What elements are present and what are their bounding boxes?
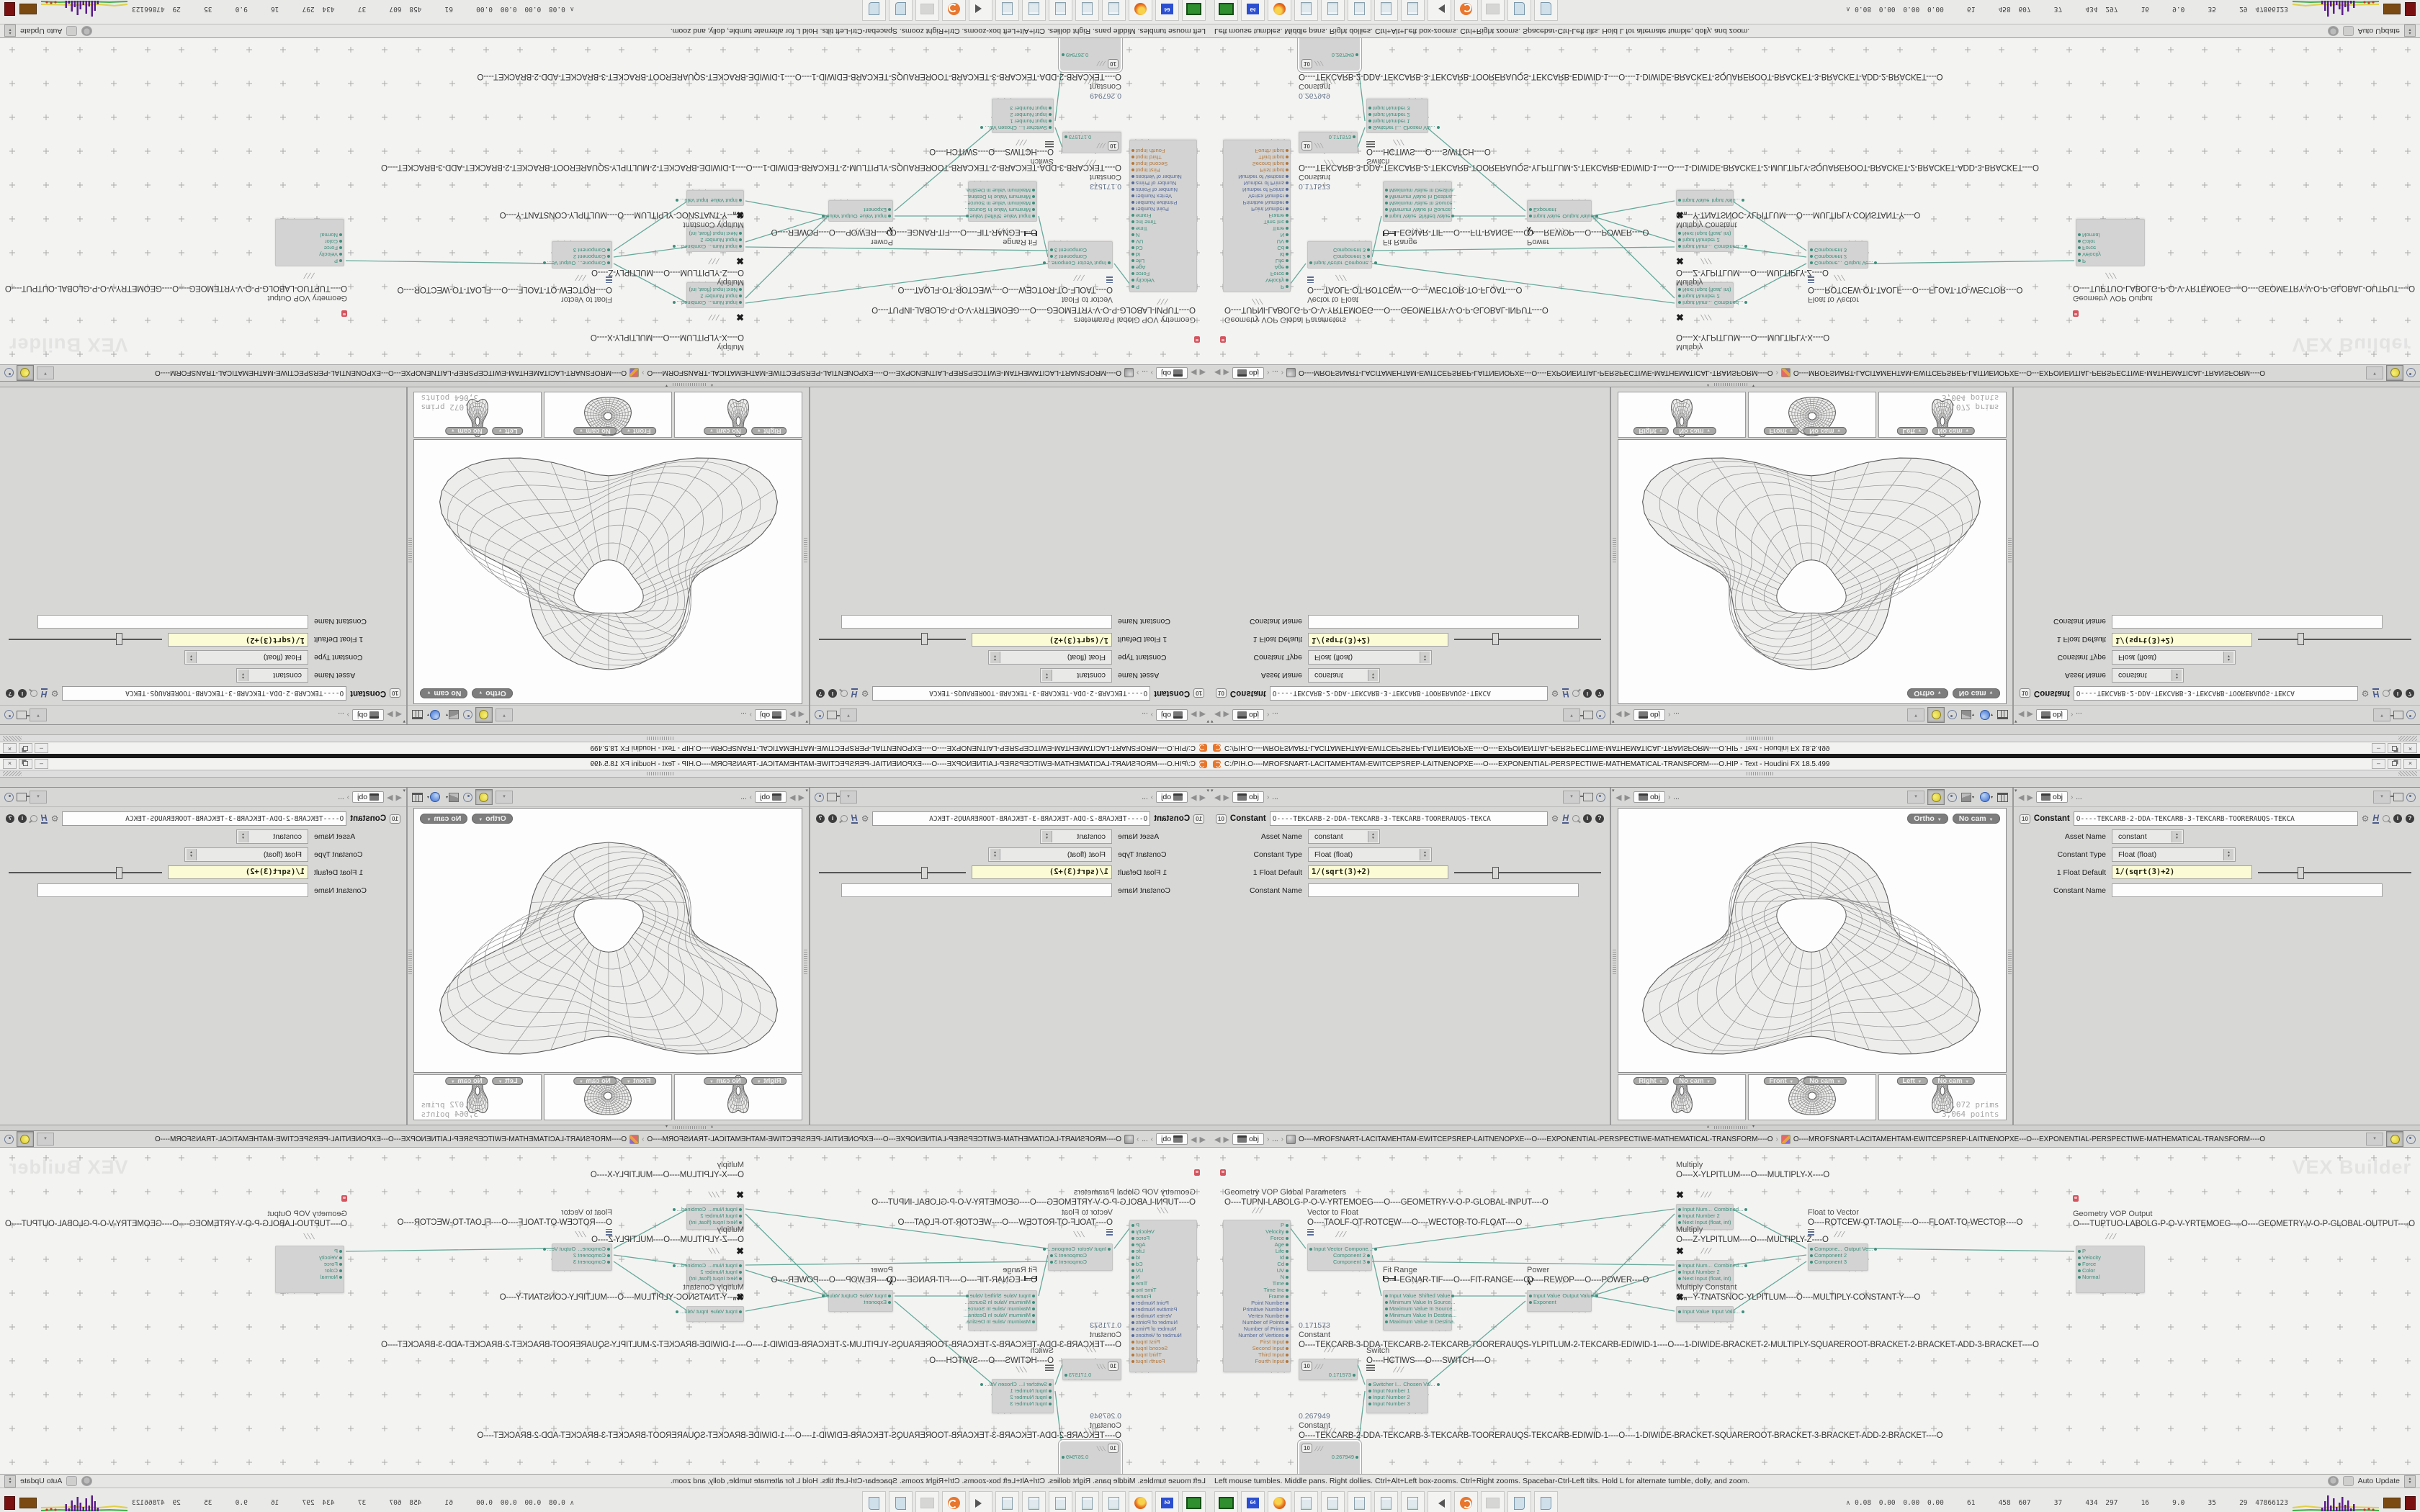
stepper-icon[interactable]: ▲▼ [2223, 652, 2233, 664]
collapsed-shelf[interactable] [1210, 770, 2420, 778]
asset-name-dropdown[interactable]: constant▲▼ [236, 669, 308, 683]
firefox-taskbar-icon[interactable] [1268, 0, 1291, 21]
breadcrumb-ellipsis[interactable]: ... [1673, 793, 1679, 801]
viewport-layout-icon[interactable] [412, 793, 423, 802]
vop-node-switch[interactable]: Switcher I...Chosen Val...Input Number 1… [992, 99, 1054, 133]
follow-selection-icon[interactable] [2406, 1135, 2416, 1144]
notepad-taskbar-icon[interactable] [1022, 1491, 1046, 1512]
display-taskbar-icon[interactable] [1214, 0, 1238, 21]
notepad-taskbar-icon[interactable] [1348, 1491, 1371, 1512]
vop-node-multiply-z[interactable]: Input Num...Combined...Input Number 2Nex… [1676, 1260, 1734, 1286]
view-projection-button[interactable]: Left ▼ [1896, 1077, 1927, 1085]
follow-selection-icon[interactable] [1596, 711, 1605, 720]
render-taskbar-icon[interactable] [915, 1491, 939, 1512]
stepper-icon[interactable]: ▲▼ [1042, 831, 1052, 842]
context-chip[interactable]: obj [1232, 709, 1264, 721]
viewport-right-view[interactable]: Right ▼ No cam ▼ [1618, 392, 1746, 438]
info-icon[interactable]: i [1583, 814, 1592, 823]
constant-type-dropdown[interactable]: Float (float)▲▼ [2112, 651, 2236, 665]
close-button[interactable]: × [2403, 743, 2417, 753]
path-dropdown[interactable]: ▾ [1907, 708, 1924, 721]
constant-name-field[interactable] [1308, 615, 1579, 629]
tray-expand-icon[interactable]: ∧ [570, 1499, 575, 1507]
horizontal-splitter[interactable] [0, 381, 1210, 387]
pin-icon[interactable] [17, 711, 27, 719]
script-taskbar-icon[interactable] [862, 1491, 886, 1512]
render-flag-icon[interactable] [1194, 336, 1200, 343]
follow-selection-icon[interactable] [815, 711, 824, 720]
follow-selection-icon[interactable] [1948, 793, 1957, 802]
update-mode-icon[interactable] [66, 26, 77, 36]
auto-update-dropdown[interactable]: ▲▼ [4, 25, 16, 37]
camera-select-button[interactable]: No cam ▼ [1932, 427, 1975, 435]
shading-mode-button[interactable]: ▾ [444, 708, 460, 722]
forward-icon[interactable]: ▶ [1191, 793, 1196, 802]
search-icon[interactable] [841, 815, 848, 822]
view-projection-button[interactable]: Front ▼ [1763, 427, 1799, 435]
memory-monitor-icon[interactable] [2328, 26, 2339, 36]
float-default-field[interactable]: 1/(sqrt(3)+2) [1308, 865, 1448, 879]
constant-name-field[interactable] [37, 883, 308, 897]
splitter-grip-icon[interactable] [1714, 1126, 1747, 1129]
network-path-segment[interactable]: O----MROFSNART-LACITAMEHTAM-EWITCEPSREP-… [1793, 369, 2363, 377]
viewport-layout-icon[interactable] [1997, 711, 2008, 720]
stepper-icon[interactable]: ▲▼ [2172, 670, 2182, 682]
update-mode-icon[interactable] [2343, 26, 2354, 36]
float-default-field[interactable]: 1/(sqrt(3)+2) [1308, 633, 1448, 647]
viewport-front-view[interactable]: Front ▼ No cam ▼ [544, 392, 673, 438]
forward-icon[interactable]: ▶ [1223, 369, 1229, 378]
constant-name-field[interactable] [1308, 883, 1579, 897]
viewport-front-view[interactable]: Front ▼ No cam ▼ [1748, 392, 1876, 438]
vop-node-constant-2[interactable]: 10///0.267949 [1298, 1440, 1361, 1474]
vop-node-switch[interactable]: Switcher I...Chosen Val...Input Number 1… [992, 1379, 1054, 1413]
viewport-layout-icon[interactable] [412, 711, 423, 720]
node-name-field[interactable] [2074, 811, 2358, 826]
pane-menu-icon[interactable]: ▾ [1612, 719, 1615, 724]
constant-type-dropdown[interactable]: Float (float)▲▼ [1308, 651, 1432, 665]
help-icon[interactable]: ? [816, 814, 825, 823]
follow-selection-icon[interactable] [4, 369, 14, 378]
viewport-right-scrollbar[interactable] [2007, 387, 2013, 705]
float-default-field[interactable]: 1/(sqrt(3)+2) [2112, 633, 2252, 647]
minimize-button[interactable]: – [2372, 743, 2385, 753]
constant-type-dropdown[interactable]: Float (float)▲▼ [2112, 847, 2236, 862]
update-mode-icon[interactable] [66, 1476, 77, 1486]
notepad-taskbar-icon[interactable] [1294, 0, 1318, 21]
stepper-icon[interactable]: ▲▼ [187, 652, 197, 664]
node-name-field[interactable] [2074, 686, 2358, 701]
stepper-icon[interactable]: ▲▼ [1368, 831, 1378, 842]
slider-knob[interactable] [921, 634, 928, 646]
render-flag-icon[interactable] [1220, 1169, 1226, 1176]
breadcrumb-ellipsis[interactable]: ... [1142, 711, 1147, 719]
slider-knob[interactable] [2298, 634, 2304, 646]
shelf-grip-icon[interactable] [646, 737, 673, 740]
notepad-taskbar-icon[interactable] [1022, 0, 1046, 21]
float-default-slider[interactable] [819, 866, 966, 879]
context-chip[interactable]: obj [755, 791, 786, 803]
path-dropdown[interactable]: ▾ [2373, 708, 2390, 721]
help-language-icon[interactable]: H [851, 814, 858, 824]
link-editor-button[interactable] [475, 789, 493, 805]
path-dropdown[interactable]: ▾ [496, 791, 513, 804]
view-projection-button[interactable]: Front ▼ [621, 1077, 657, 1085]
camera-select-button[interactable]: No cam ▼ [573, 427, 617, 435]
display-options-button[interactable]: ▾ [426, 790, 442, 804]
follow-selection-icon[interactable] [2406, 369, 2416, 378]
view-projection-button[interactable]: Left ▼ [493, 427, 524, 435]
node-name-field[interactable] [1270, 686, 1548, 701]
stepper-icon[interactable]: ▲▼ [990, 652, 1000, 664]
help-icon[interactable]: ? [6, 689, 14, 698]
follow-selection-icon[interactable] [4, 711, 14, 720]
help-language-icon[interactable]: H [2372, 689, 2379, 698]
search-icon[interactable] [1572, 690, 1579, 697]
network-path-segment[interactable]: O----MROFSNART-LACITAMEHTAM-EWITCEPSREP-… [647, 369, 1121, 377]
help-icon[interactable]: ? [816, 689, 825, 698]
context-chip[interactable]: obj [352, 791, 384, 803]
volume-taskbar-icon[interactable] [969, 1491, 992, 1512]
pin-icon[interactable] [2393, 793, 2403, 801]
gear-icon[interactable]: ⚙ [2362, 814, 2370, 823]
auto-update-dropdown[interactable]: ▲▼ [2404, 25, 2416, 37]
display-taskbar-icon[interactable] [1182, 1491, 1206, 1512]
camera-select-button[interactable]: No cam ▼ [421, 814, 468, 824]
vop-node-geometry-vop-global-parameters[interactable]: PVelocityForceAgeLifeIdCdUVNTimeTime Inc… [1129, 140, 1197, 292]
link-editor-button[interactable] [2386, 1131, 2403, 1147]
viewport-left-scrollbar[interactable] [803, 387, 810, 705]
stepper-icon[interactable]: ▲▼ [238, 670, 248, 682]
info-icon[interactable]: i [18, 689, 27, 698]
asset-name-dropdown[interactable]: constant▲▼ [1308, 669, 1380, 683]
minimize-button[interactable]: – [2372, 759, 2385, 769]
float-default-field[interactable]: 1/(sqrt(3)+2) [2112, 865, 2252, 879]
float-default-field[interactable]: 1/(sqrt(3)+2) [972, 865, 1112, 879]
view-projection-button[interactable]: Ortho ▼ [1907, 688, 1948, 698]
follow-selection-icon[interactable] [1596, 793, 1605, 802]
pane-menu-icon[interactable]: ▾ [403, 719, 405, 724]
slider-knob[interactable] [921, 867, 928, 879]
collapsed-shelf[interactable] [1210, 734, 2420, 742]
window-titlebar[interactable]: C:/PIH.O----MROFSNART-LACITAMEHTAM-EWITC… [1210, 756, 2420, 770]
back-icon[interactable]: ◀ [799, 711, 805, 720]
follow-selection-icon[interactable] [815, 793, 824, 802]
shading-mode-button[interactable]: ▾ [1960, 708, 1976, 722]
houdini-taskbar-icon[interactable] [942, 0, 966, 21]
help-icon[interactable]: ? [6, 814, 14, 823]
stepper-icon[interactable]: ▲▼ [1420, 652, 1430, 664]
context-chip[interactable]: obj [2036, 709, 2068, 721]
context-chip[interactable]: obj [755, 709, 786, 721]
breadcrumb-ellipsis[interactable]: ... [338, 793, 344, 801]
window-titlebar[interactable]: C:/PIH.O----MROFSNART-LACITAMEHTAM-EWITC… [0, 742, 1210, 756]
slider-knob[interactable] [2298, 867, 2304, 879]
back-icon[interactable]: ◀ [2018, 793, 2024, 802]
houdini-taskbar-icon[interactable] [1454, 1491, 1478, 1512]
display-options-button[interactable]: ▾ [426, 708, 442, 722]
vop-node-geometry-vop-output[interactable]: PVelocityForceColorNormal [275, 219, 344, 266]
viewport-front-view[interactable]: Front ▼ No cam ▼ [544, 1074, 673, 1120]
pane-menu-icon[interactable]: ▾ [2015, 719, 2017, 724]
pane-menu-icon[interactable]: ▾ [1211, 719, 1214, 724]
pin-icon[interactable] [1583, 793, 1593, 801]
shelf-grip-icon[interactable] [646, 772, 673, 775]
camera-select-button[interactable]: No cam ▼ [1953, 688, 2000, 698]
info-icon[interactable]: i [2393, 689, 2402, 698]
pin-icon[interactable] [827, 793, 837, 801]
context-chip[interactable]: obj [2036, 791, 2068, 803]
viewport-right-scrollbar[interactable] [408, 807, 414, 1125]
camera-select-button[interactable]: No cam ▼ [1932, 1077, 1975, 1085]
stepper-icon[interactable]: ▲▼ [1368, 670, 1378, 682]
camera-select-button[interactable]: No cam ▼ [421, 688, 468, 698]
viewport-main[interactable]: Ortho ▼ No cam ▼ [1618, 439, 2007, 704]
asset-name-dropdown[interactable]: constant▲▼ [1308, 829, 1380, 844]
viewport-layout-icon[interactable] [1997, 793, 2008, 802]
float-default-slider[interactable] [1454, 634, 1601, 647]
camera-select-button[interactable]: No cam ▼ [704, 427, 747, 435]
network-path-segment[interactable]: O----MROFSNART-LACITAMEHTAM-EWITCEPSREP-… [1299, 369, 1773, 377]
stepper-icon[interactable]: ▲▼ [1042, 670, 1052, 682]
collapsed-shelf[interactable] [0, 770, 1210, 778]
stepper-icon[interactable]: ▲▼ [187, 849, 197, 860]
restore-button[interactable] [19, 759, 32, 769]
back-icon[interactable]: ◀ [1200, 793, 1206, 802]
forward-icon[interactable]: ▶ [1223, 711, 1229, 720]
asset-name-dropdown[interactable]: constant▲▼ [2112, 669, 2184, 683]
notepad-taskbar-icon[interactable] [1321, 0, 1345, 21]
script-taskbar-icon[interactable] [862, 0, 886, 21]
display-options-button[interactable]: ▾ [1978, 708, 1994, 722]
network-path-segment[interactable]: O----MROFSNART-LACITAMEHTAM-EWITCEPSREP-… [647, 1135, 1121, 1143]
context-chip[interactable]: obj [1156, 709, 1188, 721]
help-language-icon[interactable]: H [41, 689, 48, 698]
breadcrumb-ellipsis[interactable]: ... [740, 793, 746, 801]
stepper-icon[interactable]: ▲▼ [238, 831, 248, 842]
constant-name-field[interactable] [841, 883, 1112, 897]
breadcrumb-ellipsis[interactable]: ... [1272, 1135, 1278, 1143]
search-icon[interactable] [841, 690, 848, 697]
back-icon[interactable]: ◀ [1214, 1135, 1220, 1144]
script-taskbar-icon[interactable] [1534, 0, 1558, 21]
back-icon[interactable]: ◀ [396, 793, 402, 802]
node-name-field[interactable] [62, 686, 346, 701]
notepad-taskbar-icon[interactable] [1075, 1491, 1099, 1512]
context-chip[interactable]: obj [1633, 709, 1665, 721]
link-editor-button[interactable] [17, 1131, 34, 1147]
close-button[interactable]: × [2403, 759, 2417, 769]
node-name-field[interactable] [872, 811, 1150, 826]
asset-name-dropdown[interactable]: constant▲▼ [236, 829, 308, 844]
back-icon[interactable]: ◀ [1214, 793, 1220, 802]
network-graph[interactable]: VEX Builder Geometry VOP Global Paramete… [1210, 1148, 2420, 1474]
gear-icon[interactable]: ⚙ [1551, 814, 1559, 823]
breadcrumb-ellipsis[interactable]: ... [740, 711, 746, 719]
back-icon[interactable]: ◀ [1200, 369, 1206, 378]
back-icon[interactable]: ◀ [1214, 711, 1220, 720]
path-dropdown[interactable]: ▾ [840, 708, 857, 721]
network-path-segment[interactable]: O----MROFSNART-LACITAMEHTAM-EWITCEPSREP-… [1299, 1135, 1773, 1143]
minimize-button[interactable]: – [35, 743, 48, 753]
gear-icon[interactable]: ⚙ [51, 814, 59, 823]
camera-select-button[interactable]: No cam ▼ [1803, 1077, 1847, 1085]
script-taskbar-icon[interactable] [1507, 0, 1531, 21]
back-icon[interactable]: ◀ [396, 711, 402, 720]
vop-node-float-to-vector[interactable]: Compone...Output Ve...Component 2Compone… [552, 1243, 612, 1271]
help-icon[interactable]: ? [1595, 814, 1604, 823]
viewport-right-scrollbar[interactable] [408, 387, 414, 705]
search-icon[interactable] [2383, 815, 2390, 822]
vop-node-power[interactable]: Input ValueOutput ValueExponent [828, 200, 893, 222]
render-taskbar-icon[interactable] [1481, 0, 1505, 21]
forward-icon[interactable]: ▶ [1624, 793, 1630, 802]
search-icon[interactable] [1572, 815, 1579, 822]
network-graph[interactable]: VEX Builder Geometry VOP Global Paramete… [1210, 38, 2420, 364]
vop-node-constant-2[interactable]: 10///0.267949 [1059, 38, 1122, 72]
constant-name-field[interactable] [2112, 883, 2383, 897]
firefox-taskbar-icon[interactable] [1268, 1491, 1291, 1512]
script-taskbar-icon[interactable] [1534, 1491, 1558, 1512]
vop-node-vector-to-float[interactable]: Input VectorCompone...Component 2Compone… [1048, 1243, 1113, 1271]
help-icon[interactable]: ? [2406, 689, 2414, 698]
notepad-taskbar-icon[interactable] [1049, 1491, 1072, 1512]
auto-update-dropdown[interactable]: ▲▼ [2404, 1475, 2416, 1488]
path-dropdown[interactable]: ▾ [2373, 791, 2390, 804]
vop-node-constant-2[interactable]: 10///0.267949 [1059, 1440, 1122, 1474]
search-icon[interactable] [30, 815, 37, 822]
render-flag-icon[interactable] [2073, 1195, 2079, 1202]
view-projection-button[interactable]: Front ▼ [1763, 1077, 1799, 1085]
back-icon[interactable]: ◀ [799, 793, 805, 802]
pane-menu-icon[interactable]: ▾ [1206, 788, 1209, 793]
viewport-front-view[interactable]: Front ▼ No cam ▼ [1748, 1074, 1876, 1120]
pane-menu-icon[interactable]: ▾ [1211, 788, 1214, 793]
close-button[interactable]: × [3, 743, 17, 753]
help-icon[interactable]: ? [1595, 689, 1604, 698]
camera-select-button[interactable]: No cam ▼ [704, 1077, 747, 1085]
shading-mode-button[interactable]: ▾ [444, 790, 460, 804]
viewport-left-scrollbar[interactable] [1611, 807, 1618, 1125]
pin-icon[interactable] [827, 711, 837, 719]
breadcrumb-ellipsis[interactable]: ... [1142, 369, 1147, 377]
path-dropdown[interactable]: ▾ [2366, 366, 2383, 379]
memory-monitor-icon[interactable] [81, 26, 92, 36]
forward-icon[interactable]: ▶ [387, 793, 393, 802]
constant-type-dropdown[interactable]: Float (float)▲▼ [184, 651, 308, 665]
render-flag-icon[interactable] [341, 310, 347, 317]
notepad-taskbar-icon[interactable] [1321, 1491, 1345, 1512]
notepad-taskbar-icon[interactable] [1075, 0, 1099, 21]
gear-icon[interactable]: ⚙ [861, 814, 869, 823]
back-icon[interactable]: ◀ [2018, 711, 2024, 720]
tray-expand-icon[interactable]: ∧ [1846, 1499, 1851, 1507]
constant-type-dropdown[interactable]: Float (float)▲▼ [1308, 847, 1432, 862]
notepad-taskbar-icon[interactable] [1049, 0, 1072, 21]
context-chip[interactable]: obj [1156, 1133, 1188, 1145]
vop-node-switch[interactable]: Switcher I...Chosen Val...Input Number 1… [1366, 1379, 1428, 1413]
path-dropdown[interactable]: ▾ [30, 791, 47, 804]
back-icon[interactable]: ◀ [1200, 1135, 1206, 1144]
constant-name-field[interactable] [841, 615, 1112, 629]
search-icon[interactable] [30, 690, 37, 697]
float-default-field[interactable]: 1/(sqrt(3)+2) [972, 633, 1112, 647]
pane-menu-icon[interactable]: ▾ [1206, 719, 1209, 724]
forward-icon[interactable]: ▶ [1191, 1135, 1196, 1144]
shelf-grip-icon[interactable] [1747, 772, 1774, 775]
camera-select-button[interactable]: No cam ▼ [445, 427, 488, 435]
info-icon[interactable]: i [18, 814, 27, 823]
context-chip[interactable]: obj [1156, 791, 1188, 803]
network-path-segment[interactable]: O----MROFSNART-LACITAMEHTAM-EWITCEPSREP-… [1793, 1135, 2363, 1143]
save-taskbar-icon[interactable]: 64 [1155, 0, 1179, 21]
gear-icon[interactable]: ⚙ [1551, 689, 1559, 698]
notepad-taskbar-icon[interactable] [995, 0, 1019, 21]
notepad-taskbar-icon[interactable] [1374, 1491, 1398, 1512]
gear-icon[interactable]: ⚙ [861, 689, 869, 698]
tray-expand-icon[interactable]: ∧ [570, 5, 575, 13]
path-dropdown[interactable]: ▾ [1907, 791, 1924, 804]
pin-icon[interactable] [1583, 711, 1593, 719]
forward-icon[interactable]: ▶ [1191, 711, 1196, 720]
follow-selection-icon[interactable] [463, 793, 472, 802]
viewport-right-view[interactable]: Right ▼ No cam ▼ [1618, 1074, 1746, 1120]
node-name-field[interactable] [1270, 811, 1548, 826]
vop-node-float-to-vector[interactable]: Compone...Output Ve...Component 2Compone… [1808, 241, 1868, 269]
view-projection-button[interactable]: Ortho ▼ [472, 814, 512, 824]
asset-name-dropdown[interactable]: constant▲▼ [1040, 829, 1112, 844]
camera-select-button[interactable]: No cam ▼ [445, 1077, 488, 1085]
pane-menu-icon[interactable]: ▾ [805, 788, 808, 793]
splitter-grip-icon[interactable] [673, 1126, 706, 1129]
asset-name-dropdown[interactable]: constant▲▼ [2112, 829, 2184, 844]
render-taskbar-icon[interactable] [915, 0, 939, 21]
link-editor-button[interactable] [1927, 707, 1945, 723]
viewport-main[interactable]: Ortho ▼ No cam ▼ [1618, 808, 2007, 1073]
follow-selection-icon[interactable] [463, 711, 472, 720]
vop-node-vector-to-float[interactable]: Input VectorCompone...Component 2Compone… [1048, 241, 1113, 269]
vop-node-geometry-vop-global-parameters[interactable]: PVelocityForceAgeLifeIdCdUVNTimeTime Inc… [1129, 1220, 1197, 1372]
houdini-taskbar-icon[interactable] [1454, 0, 1478, 21]
render-flag-icon[interactable] [1194, 1169, 1200, 1176]
vop-node-power[interactable]: Input ValueOutput ValueExponent [1527, 200, 1592, 222]
minimize-button[interactable]: – [35, 759, 48, 769]
stepper-icon[interactable]: ▲▼ [990, 849, 1000, 860]
breadcrumb-ellipsis[interactable]: ... [2076, 793, 2081, 801]
horizontal-splitter[interactable] [0, 1125, 1210, 1131]
view-projection-button[interactable]: Left ▼ [493, 1077, 524, 1085]
slider-knob[interactable] [116, 634, 122, 646]
notepad-taskbar-icon[interactable] [995, 1491, 1019, 1512]
viewport-right-view[interactable]: Right ▼ No cam ▼ [675, 1074, 803, 1120]
script-taskbar-icon[interactable] [889, 1491, 913, 1512]
back-icon[interactable]: ◀ [1615, 793, 1621, 802]
notepad-taskbar-icon[interactable] [1348, 0, 1371, 21]
auto-update-dropdown[interactable]: ▲▼ [4, 1475, 16, 1488]
tray-expand-icon[interactable]: ∧ [1846, 5, 1851, 13]
camera-select-button[interactable]: No cam ▼ [1673, 1077, 1716, 1085]
path-dropdown[interactable]: ▾ [30, 708, 47, 721]
breadcrumb-ellipsis[interactable]: ... [1142, 793, 1147, 801]
render-flag-icon[interactable] [1220, 336, 1226, 343]
houdini-taskbar-icon[interactable] [942, 1491, 966, 1512]
view-projection-button[interactable]: Right ▼ [1633, 1077, 1669, 1085]
pin-icon[interactable] [17, 793, 27, 801]
breadcrumb-ellipsis[interactable]: ... [2076, 711, 2081, 719]
breadcrumb-ellipsis[interactable]: ... [1673, 711, 1679, 719]
firefox-taskbar-icon[interactable] [1129, 1491, 1152, 1512]
vop-node-multiply-z[interactable]: Input Num...Combined...Input Number 2Nex… [686, 1260, 744, 1286]
